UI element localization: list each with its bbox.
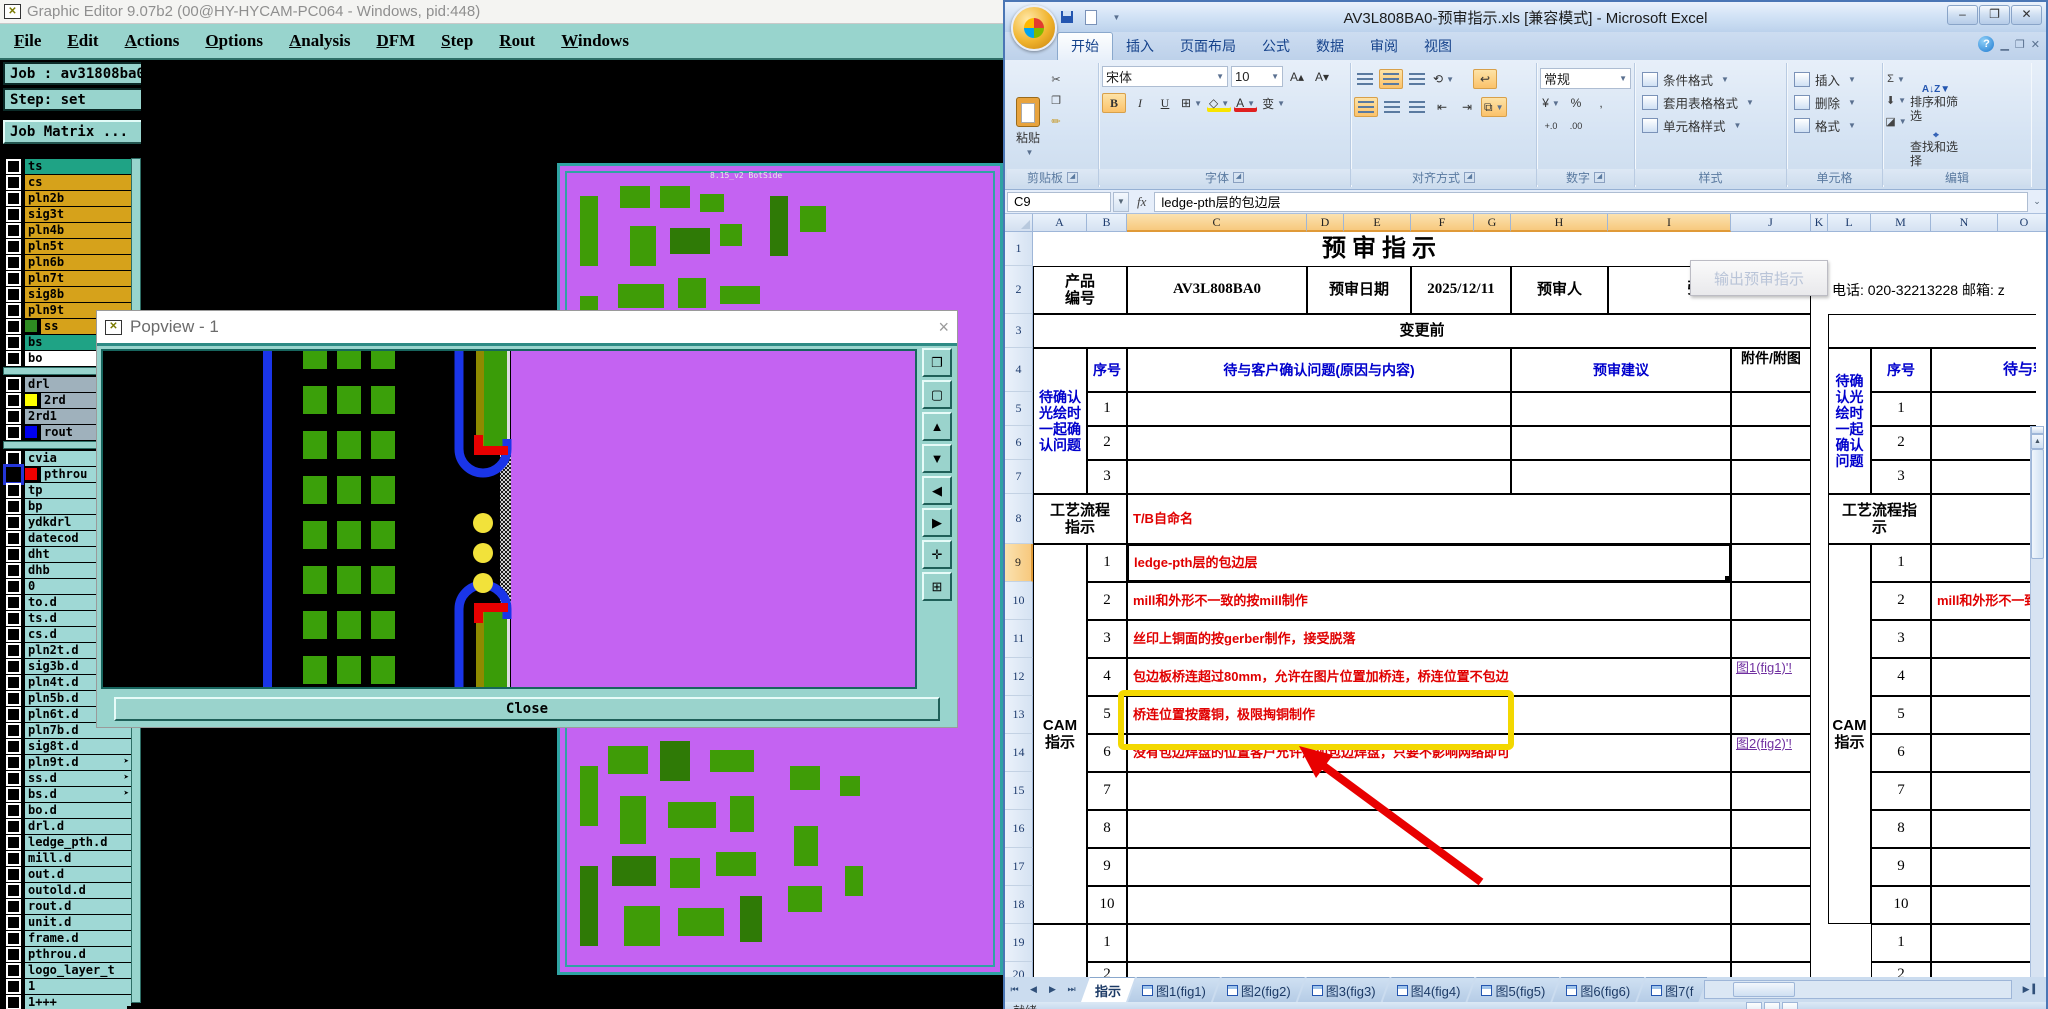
layer-checkbox[interactable] [6, 707, 21, 722]
menu-options[interactable]: Options [205, 31, 263, 51]
layer-name[interactable]: outold.d [25, 883, 131, 898]
cam-item-cell-2[interactable] [1931, 772, 2036, 810]
cam-attachment-cell[interactable] [1731, 582, 1811, 620]
sheet-tab-指示[interactable]: 指示 [1081, 977, 1135, 1002]
layer-checkbox[interactable] [6, 335, 21, 350]
hscroll-thumb[interactable] [1733, 982, 1795, 997]
dialog-launcher-icon[interactable]: ◢ [1067, 172, 1078, 183]
column-header-J[interactable]: J [1731, 214, 1811, 232]
layer-row-frame.d: frame.d [3, 930, 131, 946]
sort-filter-button[interactable]: A↓Z▼ 排序和筛选 [1906, 84, 1966, 123]
row-header-12[interactable]: 12 [1005, 658, 1033, 696]
cam-item-cell[interactable]: 桥连位置按露铜，极限掏铜制作 [1127, 696, 1731, 734]
prev-sheet-button[interactable]: ◀ [1024, 977, 1043, 1002]
first-sheet-button[interactable]: ⏮ [1005, 977, 1024, 1002]
layer-checkbox[interactable] [6, 271, 21, 286]
formula-input[interactable]: ledge-pth层的包边层 [1154, 192, 2028, 212]
layer-checkbox[interactable] [6, 643, 21, 658]
layer-name[interactable]: mill.d [25, 851, 131, 866]
cam-item-cell[interactable] [1127, 886, 1731, 924]
layer-checkbox[interactable] [6, 239, 21, 254]
layer-name[interactable]: ss.d➤ [25, 771, 131, 786]
align-bottom-button[interactable] [1406, 70, 1428, 88]
layer-checkbox[interactable] [6, 947, 21, 962]
tail-cell[interactable] [1731, 962, 1811, 977]
style-button[interactable]: 套用表格格式▼ [1638, 91, 1783, 114]
scroll-up-icon[interactable]: ▲ [2031, 434, 2044, 449]
expand-formula-bar-icon[interactable]: ⌄ [2030, 196, 2044, 207]
vertical-scrollbar[interactable]: ▲ ▼ [2030, 426, 2044, 977]
tail-cell[interactable] [1731, 924, 1811, 962]
minimize-button[interactable]: – [1947, 5, 1978, 25]
sheet-tabs-bar: ⏮ ◀ ▶ ⏭ 指示图1(fig1)图2(fig2)图3(fig3)图4(fig… [1005, 977, 2046, 1002]
layer-checkbox[interactable] [6, 377, 21, 392]
row-header-15[interactable]: 15 [1005, 772, 1033, 810]
layer-checkbox[interactable] [6, 739, 21, 754]
layer-checkbox[interactable] [6, 595, 21, 610]
percent-button[interactable]: % [1565, 94, 1587, 112]
confirm-seq: 1 [1087, 392, 1127, 426]
align-top-button[interactable] [1354, 70, 1376, 88]
workbook-minimize-icon[interactable]: ▁ [2000, 38, 2008, 51]
name-box-dropdown[interactable]: ▼ [1113, 192, 1129, 212]
layer-checkbox[interactable] [6, 835, 21, 850]
borders-button[interactable]: ⊞▼ [1179, 94, 1204, 112]
editing-group: Σ▼ ⬇▼ ◪▼ A↓Z▼ 排序和筛选 ⌖ 查找和选择 [1883, 63, 2031, 187]
sheet-tab-图1(fig1)[interactable]: 图1(fig1) [1128, 977, 1220, 1002]
cell[interactable] [1931, 494, 2036, 544]
layer-name[interactable]: rout.d [25, 899, 131, 914]
attachment-link[interactable]: 图2(fig2)'! [1731, 734, 1811, 772]
menu-rout[interactable]: Rout [499, 31, 535, 51]
popview-pan-right-button[interactable]: ▶ [922, 508, 952, 537]
sheet-tab-图3(fig3)[interactable]: 图3(fig3) [1298, 977, 1390, 1002]
layer-checkbox[interactable] [6, 627, 21, 642]
cam-item-cell-2[interactable] [1931, 886, 2036, 924]
row-header-4[interactable]: 4 [1005, 348, 1033, 392]
layer-name[interactable]: ledge_pth.d [25, 835, 131, 850]
cam-seq: 3 [1087, 620, 1127, 658]
popview-close-button[interactable]: Close [114, 697, 940, 721]
layer-checkbox[interactable] [6, 723, 21, 738]
popview-canvas[interactable] [101, 349, 917, 689]
process-note[interactable]: T/B自命名 [1127, 494, 1731, 544]
align-right-button[interactable] [1406, 98, 1428, 116]
layer-checkbox[interactable] [6, 995, 21, 1009]
layer-checkbox[interactable] [6, 979, 21, 994]
row-header-3[interactable]: 3 [1005, 314, 1033, 348]
grow-font-button[interactable]: A▴ [1286, 68, 1308, 86]
column-header-N[interactable]: N [1931, 214, 1998, 232]
cam-seq: 7 [1087, 772, 1127, 810]
layer-name[interactable]: bs.d➤ [25, 787, 131, 802]
cam-item-cell[interactable]: 没有包边焊盘的位置客户允许添加包边焊盘，只要不影响网络即可 [1127, 734, 1731, 772]
layer-checkbox[interactable] [6, 659, 21, 674]
layer-name[interactable]: unit.d [25, 915, 131, 930]
menu-step[interactable]: Step [441, 31, 473, 51]
copy-button[interactable]: ❐ [1046, 91, 1066, 109]
row-header-5[interactable]: 5 [1005, 392, 1033, 426]
column-header-H[interactable]: H [1511, 214, 1608, 232]
ribbon-tab-数据[interactable]: 数据 [1303, 33, 1357, 60]
layer-checkbox[interactable] [6, 159, 21, 174]
layer-color-swatch[interactable] [25, 426, 37, 438]
office-button[interactable] [1011, 5, 1057, 51]
menu-file[interactable]: File [14, 31, 41, 51]
layer-name[interactable]: pln4b [25, 223, 131, 238]
layer-color-swatch[interactable] [25, 468, 37, 480]
layer-checkbox[interactable] [6, 963, 21, 978]
layer-row-rout.d: rout.d [3, 898, 131, 914]
column-header-O[interactable]: O [1998, 214, 2046, 232]
autosum-button[interactable]: Σ▼ [1886, 70, 1906, 88]
row-header-18[interactable]: 18 [1005, 886, 1033, 924]
confirm-suggestion-cell[interactable] [1511, 392, 1731, 426]
popview-titlebar[interactable]: ✕ Popview - 1 × [97, 311, 957, 346]
cam-item-cell-2[interactable] [1931, 544, 2036, 582]
cam-item-cell-2[interactable] [1931, 810, 2036, 848]
layer-checkbox[interactable] [6, 851, 21, 866]
layer-checkbox[interactable] [6, 393, 21, 408]
layer-checkbox[interactable] [6, 287, 21, 302]
font-color-button[interactable]: A▼ [1234, 94, 1257, 112]
column-header-E[interactable]: E [1344, 214, 1411, 232]
confirm-attachment-cell[interactable] [1731, 460, 1811, 494]
normal-view-icon[interactable] [1746, 1002, 1762, 1009]
layer-checkbox[interactable] [6, 931, 21, 946]
row-header-11[interactable]: 11 [1005, 620, 1033, 658]
layer-name[interactable]: sig8b [25, 287, 131, 302]
cells-button[interactable]: 删除▼ [1790, 91, 1879, 114]
sheet-tab-图5(fig5)[interactable]: 图5(fig5) [1467, 977, 1559, 1002]
cam-attachment-cell[interactable] [1731, 772, 1811, 810]
align-middle-button[interactable] [1379, 69, 1403, 89]
layer-name[interactable]: sig8t.d [25, 739, 131, 754]
cell[interactable] [1931, 460, 2036, 494]
cam-item-cell-2[interactable] [1931, 696, 2036, 734]
cut-button[interactable]: ✂ [1046, 70, 1066, 88]
confirm-attachment-cell[interactable] [1731, 426, 1811, 460]
comma-button[interactable]: , [1590, 94, 1612, 112]
layer-name[interactable]: 1 [25, 979, 131, 994]
cell[interactable] [1931, 392, 2036, 426]
layer-row-pln7t: pln7t [3, 270, 131, 286]
row-header-7[interactable]: 7 [1005, 460, 1033, 494]
column-header-K[interactable]: K [1811, 214, 1828, 232]
dialog-launcher-icon[interactable]: ◢ [1233, 172, 1244, 183]
cam-seq-2: 9 [1871, 848, 1931, 886]
cam-item-cell[interactable]: mill和外形不一致的按mill制作 [1127, 582, 1731, 620]
shrink-font-button[interactable]: A▾ [1311, 68, 1333, 86]
decrease-indent-button[interactable]: ⇤ [1431, 98, 1453, 116]
row-header-10[interactable]: 10 [1005, 582, 1033, 620]
vscroll-thumb[interactable] [2031, 449, 2044, 559]
cells-button[interactable]: 格式▼ [1790, 114, 1879, 137]
tab-split-handle[interactable]: ▍ [2033, 984, 2040, 995]
layer-checkbox[interactable] [6, 579, 21, 594]
layer-name[interactable]: drl.d [25, 819, 131, 834]
menu-dfm[interactable]: DFM [376, 31, 415, 51]
tail-cell-2[interactable] [1931, 962, 2036, 977]
layer-name[interactable]: pln7t [25, 271, 131, 286]
cam-item-cell[interactable]: 丝印上铜面的按gerber制作，接受脱落 [1127, 620, 1731, 658]
clear-button[interactable]: ◪▼ [1886, 112, 1906, 130]
page-break-view-icon[interactable] [1782, 1002, 1798, 1009]
page-layout-view-icon[interactable] [1764, 1002, 1780, 1009]
ribbon-tab-公式[interactable]: 公式 [1249, 33, 1303, 60]
popview-pan-center-button[interactable]: ⊞ [922, 572, 952, 601]
insert-function-button[interactable]: fx [1131, 194, 1152, 210]
menu-actions[interactable]: Actions [125, 31, 180, 51]
layer-name[interactable]: pln9t.d➤ [25, 755, 131, 770]
dialog-launcher-icon[interactable]: ◢ [1594, 172, 1605, 183]
column-header-A[interactable]: A [1033, 214, 1087, 232]
cam-attachment-cell[interactable] [1731, 886, 1811, 924]
cam-attachment-cell[interactable] [1731, 620, 1811, 658]
font-name-combo[interactable]: 宋体▼ [1102, 66, 1228, 87]
sheet-tab-图2(fig2)[interactable]: 图2(fig2) [1213, 977, 1305, 1002]
ribbon-tab-视图[interactable]: 视图 [1411, 33, 1465, 60]
column-header-G[interactable]: G [1474, 214, 1511, 232]
column-header-L[interactable]: L [1828, 214, 1871, 232]
reviewer-label: 预审人 [1511, 266, 1608, 314]
layer-checkbox[interactable] [6, 425, 21, 440]
layer-checkbox[interactable] [6, 787, 21, 802]
row-header-13[interactable]: 13 [1005, 696, 1033, 734]
workbook-close-icon[interactable]: ✕ [2031, 38, 2040, 51]
cells-button[interactable]: 插入▼ [1790, 68, 1879, 91]
select-all-corner[interactable] [1005, 214, 1033, 232]
layer-checkbox[interactable] [6, 467, 21, 482]
sheet-tab-图6(fig6)[interactable]: 图6(fig6) [1552, 977, 1644, 1002]
layer-name[interactable]: sig3t [25, 207, 131, 222]
ribbon-tab-页面布局[interactable]: 页面布局 [1167, 33, 1249, 60]
cells-icon [1794, 95, 1810, 110]
layer-checkbox[interactable] [6, 803, 21, 818]
font-size-combo[interactable]: 10▼ [1231, 66, 1283, 87]
cam-attachment-cell[interactable] [1731, 696, 1811, 734]
layer-checkbox[interactable] [6, 319, 21, 334]
confirm-question-cell[interactable] [1127, 426, 1511, 460]
name-box[interactable]: C9 [1007, 192, 1111, 212]
attachment-link[interactable]: 图1(fig1)'! [1731, 658, 1811, 696]
workbook-restore-icon[interactable]: ❐ [2015, 38, 2025, 51]
layer-name[interactable]: frame.d [25, 931, 131, 946]
cam-item-cell[interactable] [1127, 810, 1731, 848]
confirm-suggestion-cell[interactable] [1511, 460, 1731, 494]
cam-item-cell[interactable]: 包边板桥连超过80mm，允许在图片位置加桥连，桥连位置不包边 [1127, 658, 1731, 696]
style-button[interactable]: 单元格样式▼ [1638, 114, 1783, 137]
layer-checkbox[interactable] [6, 191, 21, 206]
confirm-question-cell[interactable] [1127, 392, 1511, 426]
layer-checkbox[interactable] [6, 675, 21, 690]
align-left-button[interactable] [1354, 97, 1378, 117]
layer-checkbox[interactable] [6, 483, 21, 498]
column-header-D[interactable]: D [1307, 214, 1344, 232]
popview-pan-down-button[interactable]: ▼ [922, 444, 952, 473]
italic-button[interactable]: I [1129, 94, 1151, 112]
confirm-attachment-cell[interactable] [1731, 392, 1811, 426]
layer-checkbox[interactable] [6, 409, 21, 424]
next-sheet-button[interactable]: ▶ [1043, 977, 1062, 1002]
cam-item-cell-2[interactable] [1931, 658, 2036, 696]
sheet-tab-图4(fig4)[interactable]: 图4(fig4) [1383, 977, 1475, 1002]
popview-copy-window-button[interactable]: ❐ [922, 348, 952, 377]
layer-checkbox[interactable] [6, 755, 21, 770]
popview-pan-up-button[interactable]: ▲ [922, 412, 952, 441]
popview-pan-left-button[interactable]: ◀ [922, 476, 952, 505]
cell[interactable] [1931, 426, 2036, 460]
row-header-14[interactable]: 14 [1005, 734, 1033, 772]
ribbon-tab-开始[interactable]: 开始 [1057, 32, 1113, 60]
layer-checkbox[interactable] [6, 867, 21, 882]
layer-name[interactable]: 1+++ [25, 995, 131, 1009]
merge-center-button[interactable]: ⧉▼ [1481, 97, 1507, 117]
accounting-format-button[interactable]: ¥▼ [1540, 94, 1562, 112]
layer-checkbox[interactable] [6, 915, 21, 930]
number-format-combo[interactable]: 常规▼ [1540, 68, 1631, 89]
layer-checkbox[interactable] [6, 547, 21, 562]
sheet-tab-图7(f[interactable]: 图7(f [1637, 977, 1707, 1002]
split-handle[interactable] [2031, 426, 2044, 434]
fill-button[interactable]: ⬇▼ [1886, 91, 1906, 109]
row-header-1[interactable]: 1 [1005, 232, 1033, 266]
confirm-suggestion-cell[interactable] [1511, 426, 1731, 460]
ribbon-tab-插入[interactable]: 插入 [1113, 33, 1167, 60]
style-icon [1642, 72, 1658, 87]
column-header-C[interactable]: C [1127, 214, 1307, 232]
cam-item-cell[interactable] [1127, 772, 1731, 810]
layer-checkbox[interactable] [6, 611, 21, 626]
layer-name[interactable]: cs [25, 175, 131, 190]
layer-checkbox[interactable] [6, 303, 21, 318]
cam-attachment-cell[interactable] [1731, 810, 1811, 848]
column-header-I[interactable]: I [1608, 214, 1731, 232]
layer-checkbox[interactable] [6, 451, 21, 466]
layer-checkbox[interactable] [6, 691, 21, 706]
cells-viewport[interactable]: 预审指示产品编号AV3L808BA0预审日期2025/12/11预审人张茉薇变更… [1033, 232, 2036, 977]
maximize-button[interactable]: ❐ [1979, 5, 2010, 25]
cam-item-cell-2[interactable]: mill和外形不一致 [1931, 582, 2036, 620]
style-button[interactable]: 条件格式▼ [1638, 68, 1783, 91]
tail-cell[interactable] [1127, 924, 1731, 962]
increase-decimal-button[interactable]: +.0 [1540, 117, 1562, 135]
cam-seq: 8 [1087, 810, 1127, 848]
layer-checkbox[interactable] [6, 499, 21, 514]
horizontal-scrollbar[interactable] [1704, 980, 2012, 999]
layer-color-swatch[interactable] [25, 320, 37, 332]
layer-checkbox[interactable] [6, 207, 21, 222]
row-header-2[interactable]: 2 [1005, 266, 1033, 314]
layer-checkbox[interactable] [6, 563, 21, 578]
layer-name[interactable]: logo_layer_t [25, 963, 131, 978]
cam-item-cell[interactable]: ledge-pth层的包边层 [1127, 544, 1731, 582]
tail-cell-2[interactable] [1931, 924, 2036, 962]
job-matrix-button[interactable]: Job Matrix ... [3, 120, 159, 144]
tail-cell[interactable] [1127, 962, 1731, 977]
cam-item-cell-2[interactable] [1931, 620, 2036, 658]
row-header-16[interactable]: 16 [1005, 810, 1033, 848]
popview-zoom-fit-button[interactable]: ✛ [922, 540, 952, 569]
bold-button[interactable]: B [1102, 93, 1126, 113]
cam-seq: 2 [1087, 582, 1127, 620]
layer-checkbox[interactable] [6, 223, 21, 238]
menu-windows[interactable]: Windows [561, 31, 629, 51]
layer-checkbox[interactable] [6, 175, 21, 190]
layer-name[interactable]: out.d [25, 867, 131, 882]
ribbon-tab-审阅[interactable]: 审阅 [1357, 33, 1411, 60]
column-header-F[interactable]: F [1411, 214, 1474, 232]
help-button[interactable]: ? [1978, 36, 1994, 52]
scroll-right-icon[interactable]: ▶ [2023, 984, 2030, 995]
layer-name[interactable]: ts [25, 159, 131, 174]
sheet-tabs: 指示图1(fig1)图2(fig2)图3(fig3)图4(fig4)图5(fig… [1081, 977, 1700, 1002]
column-header-B[interactable]: B [1087, 214, 1127, 232]
cam-seq-2: 3 [1871, 620, 1931, 658]
layer-color-swatch[interactable] [25, 394, 37, 406]
row-header-19[interactable]: 19 [1005, 924, 1033, 962]
layer-checkbox[interactable] [6, 883, 21, 898]
row-header-8[interactable]: 8 [1005, 494, 1033, 544]
dialog-launcher-icon[interactable]: ◢ [1464, 172, 1475, 183]
layer-name[interactable]: pln5t [25, 239, 131, 254]
layer-checkbox[interactable] [6, 531, 21, 546]
form-left-pane: 预审指示产品编号AV3L808BA0预审日期2025/12/11预审人张茉薇变更… [1033, 232, 1811, 977]
fill-color-button[interactable]: ◇▼ [1207, 94, 1231, 112]
row-header-6[interactable]: 6 [1005, 426, 1033, 460]
orientation-button[interactable]: ⟲▼ [1431, 70, 1456, 88]
cam-item-cell[interactable] [1127, 848, 1731, 886]
cell[interactable] [1731, 494, 1811, 544]
row-header-20[interactable]: 20 [1005, 962, 1033, 977]
cam-attachment-cell[interactable] [1731, 848, 1811, 886]
row-header-17[interactable]: 17 [1005, 848, 1033, 886]
layer-checkbox[interactable] [6, 819, 21, 834]
underline-button[interactable]: U [1154, 94, 1176, 112]
phonetic-button[interactable]: 变▼ [1260, 94, 1287, 112]
layer-checkbox[interactable] [6, 771, 21, 786]
layer-checkbox[interactable] [6, 351, 21, 366]
close-button[interactable]: ✕ [2011, 5, 2042, 25]
confirm-question-cell[interactable] [1127, 460, 1511, 494]
menu-edit[interactable]: Edit [67, 31, 98, 51]
cam-item-cell-2[interactable] [1931, 734, 2036, 772]
decrease-decimal-button[interactable]: .00 [1565, 117, 1587, 135]
cam-item-cell-2[interactable] [1931, 848, 2036, 886]
column-header-M[interactable]: M [1871, 214, 1931, 232]
wrap-text-button[interactable]: ↩ [1473, 69, 1497, 89]
row-header-9[interactable]: 9 [1005, 544, 1033, 582]
align-center-button[interactable] [1381, 98, 1403, 116]
layer-checkbox[interactable] [6, 899, 21, 914]
popview-window-button[interactable]: ▢ [922, 380, 952, 409]
last-sheet-button[interactable]: ⏭ [1062, 977, 1081, 1002]
cam-attachment-cell[interactable] [1731, 544, 1811, 582]
layer-checkbox[interactable] [6, 515, 21, 530]
layer-name[interactable]: pln6b [25, 255, 131, 270]
popview-title: Popview - 1 [130, 317, 930, 337]
find-select-button[interactable]: ⌖ 查找和选择 [1906, 130, 1966, 169]
popview-close-icon[interactable]: × [938, 317, 949, 338]
layer-name[interactable]: bo.d [25, 803, 131, 818]
layer-checkbox[interactable] [6, 255, 21, 270]
layer-name[interactable]: pthrou.d [25, 947, 131, 962]
increase-indent-button[interactable]: ⇥ [1456, 98, 1478, 116]
menu-analysis[interactable]: Analysis [289, 31, 350, 51]
export-review-button[interactable]: 输出预审指示 [1690, 260, 1828, 296]
format-painter-button[interactable]: ✏ [1046, 112, 1066, 130]
layer-name[interactable]: pln2b [25, 191, 131, 206]
